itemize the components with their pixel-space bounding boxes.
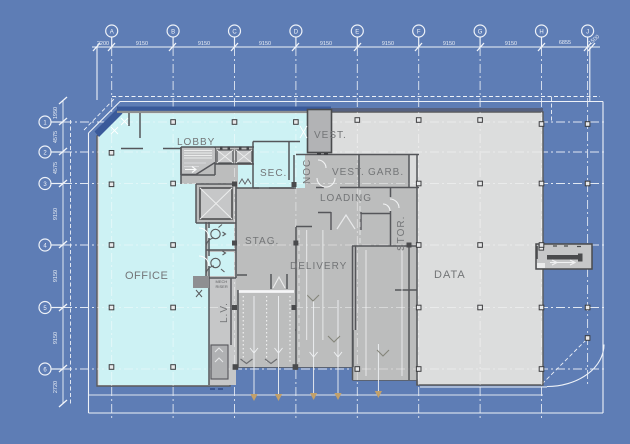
svg-text:4575: 4575: [53, 162, 59, 174]
svg-text:2720: 2720: [53, 381, 59, 393]
svg-text:B: B: [171, 29, 175, 35]
svg-text:SEC.: SEC.: [260, 168, 287, 179]
svg-text:LOBBY: LOBBY: [177, 137, 215, 148]
svg-text:D: D: [294, 29, 299, 35]
svg-text:9150: 9150: [259, 41, 271, 47]
svg-text:9150: 9150: [53, 332, 59, 344]
svg-text:DATA: DATA: [434, 269, 466, 281]
svg-text:F: F: [417, 29, 421, 35]
svg-text:2200: 2200: [97, 41, 109, 47]
svg-text:J: J: [586, 29, 589, 35]
svg-text:VEST.: VEST.: [332, 167, 365, 178]
svg-text:GARB.: GARB.: [368, 167, 404, 178]
svg-text:9150: 9150: [443, 41, 455, 47]
svg-text:E: E: [355, 29, 359, 35]
svg-text:6855: 6855: [559, 40, 571, 46]
svg-text:9150: 9150: [505, 41, 517, 47]
svg-text:STOR.: STOR.: [396, 216, 407, 251]
svg-text:L.V.: L.V.: [219, 302, 230, 323]
svg-text:H: H: [539, 29, 543, 35]
svg-text:A: A: [110, 29, 114, 35]
svg-text:LOADING: LOADING: [320, 193, 372, 204]
svg-text:9150: 9150: [382, 41, 394, 47]
svg-text:VEST.: VEST.: [314, 130, 347, 141]
svg-text:9150: 9150: [53, 270, 59, 282]
svg-text:NOC: NOC: [302, 159, 313, 184]
svg-text:DELIVERY: DELIVERY: [290, 261, 347, 272]
svg-text:9150: 9150: [198, 41, 210, 47]
svg-text:9150: 9150: [320, 41, 332, 47]
svg-text:C: C: [232, 29, 237, 35]
svg-text:9150: 9150: [136, 41, 148, 47]
svg-text:OFFICE: OFFICE: [125, 270, 168, 282]
svg-text:4575: 4575: [53, 131, 59, 143]
svg-text:RISER: RISER: [216, 284, 228, 289]
svg-text:1950: 1950: [53, 107, 59, 119]
svg-text:9150: 9150: [53, 208, 59, 220]
svg-text:STAG.: STAG.: [245, 236, 279, 247]
svg-text:G: G: [478, 29, 483, 35]
